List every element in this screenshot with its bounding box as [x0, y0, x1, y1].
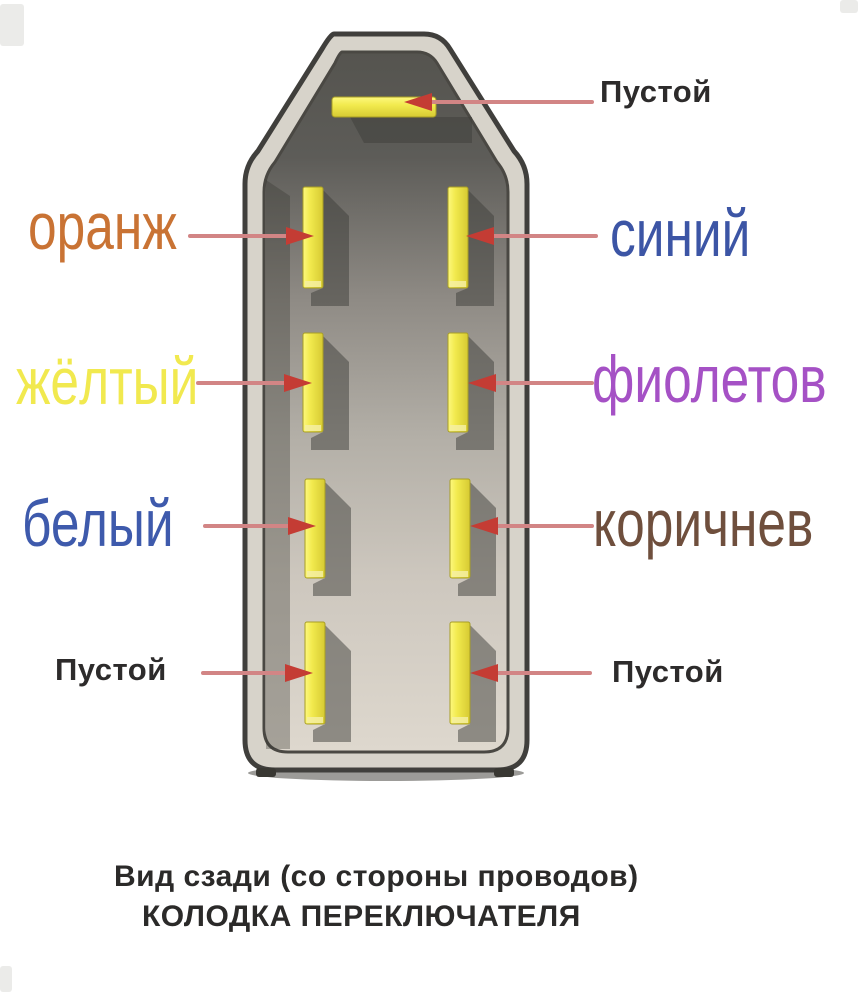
pin-shadow	[350, 117, 472, 143]
pin-row4-right	[450, 622, 470, 724]
label-top-empty: Пустой	[600, 76, 712, 107]
pin-cap	[307, 717, 323, 723]
pin-cap	[450, 281, 466, 287]
pin-row2-right	[448, 333, 468, 432]
pin-row1-right	[448, 187, 468, 288]
connector-foot-left	[256, 768, 276, 777]
label-yellow: жёлтый	[16, 348, 198, 414]
pin-cap	[305, 425, 321, 431]
label-white: белый	[22, 490, 174, 556]
label-brown: коричнев	[593, 490, 813, 556]
pin-row3-right	[450, 479, 470, 578]
caption-view-note: Вид сзади (со стороны проводов)	[114, 862, 639, 892]
pin-cap	[450, 425, 466, 431]
pin-cap	[452, 717, 468, 723]
pin-cap	[307, 571, 323, 577]
label-bottom-left-empty: Пустой	[55, 654, 167, 685]
pin-cap	[305, 281, 321, 287]
label-violet: фиолетов	[592, 346, 827, 412]
caption-connector-title: КОЛОДКА ПЕРЕКЛЮЧАТЕЛЯ	[142, 902, 581, 932]
cavity-left-wall-shadow	[266, 180, 290, 749]
label-blue: синий	[610, 200, 750, 266]
connector-foot-right	[494, 768, 514, 777]
label-orange: оранж	[28, 193, 177, 259]
diagram-page: Пустой оранж синий жёлтый фиолетов белый…	[0, 0, 858, 996]
pin-cap	[452, 571, 468, 577]
label-bottom-right-empty: Пустой	[612, 656, 724, 687]
